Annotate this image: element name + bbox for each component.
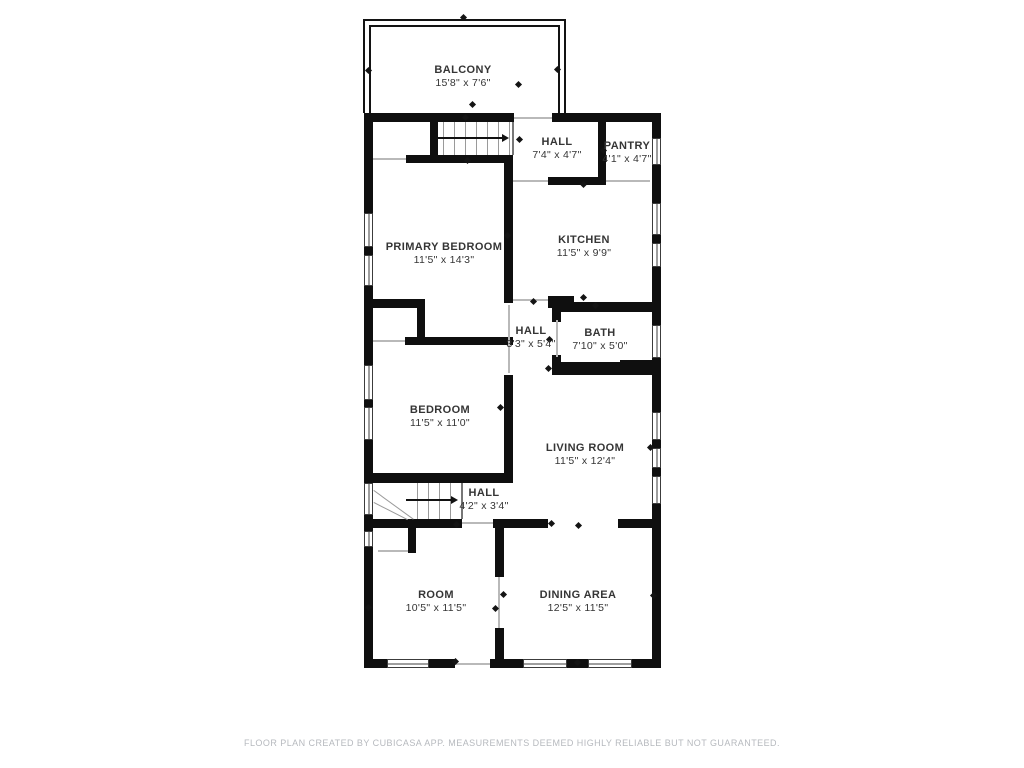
- measurement-tick: [545, 365, 552, 372]
- page: BALCONY15'8" x 7'6"HALL7'4" x 4'7"PANTRY…: [0, 0, 1024, 768]
- room-dimensions: 7'10" x 5'0": [572, 340, 627, 353]
- room-name: BEDROOM: [410, 404, 470, 417]
- room-dimensions: 11'5" x 14'3": [386, 254, 503, 267]
- window: [364, 483, 373, 515]
- door-opening-line: [514, 117, 552, 119]
- window: [652, 448, 661, 468]
- wall-segment: [504, 155, 513, 303]
- room-name: HALL: [532, 136, 581, 149]
- door-opening-line: [606, 180, 650, 182]
- wall-segment: [406, 155, 513, 163]
- door-opening-line: [556, 320, 558, 357]
- stair-direction-arrow-icon: [502, 134, 509, 142]
- wall-segment: [364, 400, 373, 407]
- measurement-tick: [575, 522, 582, 529]
- wall-segment: [364, 113, 373, 213]
- room-name: PRIMARY BEDROOM: [386, 241, 503, 254]
- measurement-tick: [580, 294, 587, 301]
- room-label-dining-area: DINING AREA12'5" x 11'5": [540, 589, 617, 615]
- stair-direction-arrow-icon: [451, 496, 458, 504]
- wall-segment: [552, 113, 661, 122]
- wall-segment: [364, 113, 514, 122]
- room-name: BALCONY: [434, 64, 491, 77]
- room-label-hall-upper: HALL7'4" x 4'7": [532, 136, 581, 162]
- room-label-bedroom: BEDROOM11'5" x 11'0": [410, 404, 470, 430]
- window: [364, 531, 373, 547]
- room-dimensions: 12'5" x 11'5": [540, 602, 617, 615]
- wall-segment: [652, 113, 661, 138]
- wall-segment: [364, 247, 373, 255]
- wall-segment: [552, 302, 561, 322]
- wall-segment: [652, 468, 661, 476]
- stair-line: [509, 122, 510, 155]
- wall-segment: [408, 528, 416, 553]
- wall-segment: [405, 337, 513, 345]
- wall-segment: [364, 299, 425, 308]
- stair-line: [438, 137, 502, 139]
- room-dimensions: 11'5" x 11'0": [410, 417, 470, 430]
- floor-plan: BALCONY15'8" x 7'6"HALL7'4" x 4'7"PANTRY…: [0, 0, 1024, 768]
- wall-segment: [652, 358, 661, 412]
- door-opening-line: [513, 180, 548, 182]
- door-opening-line: [498, 577, 500, 628]
- wall-segment: [652, 165, 661, 203]
- window: [364, 365, 373, 400]
- window: [652, 243, 661, 267]
- measurement-tick: [500, 591, 507, 598]
- door-opening-line: [462, 522, 493, 524]
- room-label-kitchen: KITCHEN11'5" x 9'9": [557, 234, 612, 260]
- wall-segment: [632, 659, 661, 668]
- window: [652, 476, 661, 504]
- wall-segment: [429, 659, 455, 668]
- room-name: HALL: [506, 325, 555, 338]
- stair-line: [439, 483, 440, 519]
- window: [364, 213, 373, 247]
- wall-segment: [495, 519, 504, 577]
- door-opening-line: [455, 663, 490, 665]
- window: [523, 659, 567, 668]
- measurement-tick: [516, 136, 523, 143]
- stair-line: [428, 483, 429, 519]
- stair-line: [417, 483, 418, 519]
- room-dimensions: 15'8" x 7'6": [434, 77, 491, 90]
- stair-line: [512, 122, 514, 155]
- measurement-tick: [497, 404, 504, 411]
- window: [652, 325, 661, 358]
- room-label-living-room: LIVING ROOM11'5" x 12'4": [546, 442, 624, 468]
- wall-segment: [620, 360, 652, 375]
- door-opening-line: [373, 340, 405, 342]
- room-label-hall-lower: HALL4'2" x 3'4": [459, 487, 508, 513]
- wall-segment: [364, 473, 513, 483]
- room-dimensions: 11'5" x 9'9": [557, 247, 612, 260]
- room-dimensions: 3'3" x 5'4": [506, 338, 555, 351]
- footer-disclaimer: FLOOR PLAN CREATED BY CUBICASA APP. MEAS…: [0, 738, 1024, 748]
- measurement-tick: [548, 520, 555, 527]
- room-name: HALL: [459, 487, 508, 500]
- door-opening-line: [373, 158, 406, 160]
- wall-segment: [652, 235, 661, 243]
- window: [652, 138, 661, 165]
- room-name: BATH: [572, 327, 627, 340]
- room-label-room: ROOM10'5" x 11'5": [406, 589, 467, 615]
- room-name: ROOM: [406, 589, 467, 602]
- stair-line: [406, 499, 451, 501]
- wall-segment: [504, 375, 513, 482]
- room-dimensions: 4'1" x 4'7": [602, 153, 651, 166]
- wall-segment: [495, 628, 504, 659]
- window: [364, 255, 373, 286]
- room-name: LIVING ROOM: [546, 442, 624, 455]
- room-label-bath: BATH7'10" x 5'0": [572, 327, 627, 353]
- room-name: DINING AREA: [540, 589, 617, 602]
- window: [652, 203, 661, 235]
- room-name: KITCHEN: [557, 234, 612, 247]
- window: [652, 412, 661, 440]
- wall-segment: [364, 659, 387, 668]
- room-name: PANTRY: [602, 140, 651, 153]
- wall-segment: [490, 659, 523, 668]
- wall-segment: [557, 302, 652, 312]
- room-label-balcony: BALCONY15'8" x 7'6": [434, 64, 491, 90]
- wall-segment: [618, 519, 661, 528]
- wall-segment: [364, 519, 462, 528]
- room-dimensions: 4'2" x 3'4": [459, 500, 508, 513]
- wall-segment: [364, 286, 373, 365]
- room-dimensions: 11'5" x 12'4": [546, 455, 624, 468]
- room-dimensions: 7'4" x 4'7": [532, 149, 581, 162]
- room-dimensions: 10'5" x 11'5": [406, 602, 467, 615]
- room-label-pantry: PANTRY4'1" x 4'7": [602, 140, 651, 166]
- wall-segment: [652, 504, 661, 668]
- room-label-hall-middle: HALL3'3" x 5'4": [506, 325, 555, 351]
- room-label-primary-bedroom: PRIMARY BEDROOM11'5" x 14'3": [386, 241, 503, 267]
- window: [588, 659, 632, 668]
- door-opening-line: [378, 550, 408, 552]
- window: [364, 407, 373, 440]
- wall-segment: [652, 267, 661, 325]
- window: [387, 659, 429, 668]
